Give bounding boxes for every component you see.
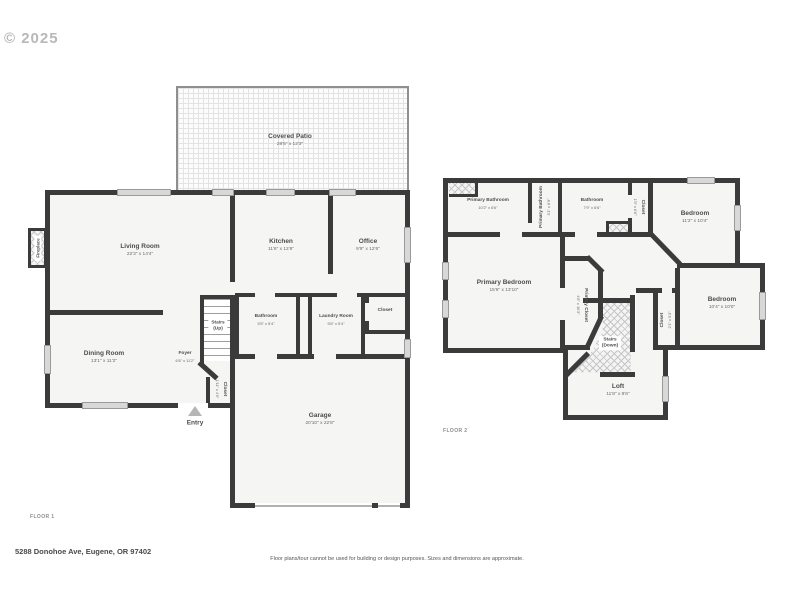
room-name: Primary Bedroom	[477, 279, 532, 287]
wall-segment	[277, 354, 314, 359]
room-dims: 10'2" x 6'6"	[467, 205, 509, 210]
room-fill	[232, 360, 408, 505]
label-closet-small: Closet 2'1" x 5'3"	[660, 311, 672, 328]
label-loft: Loft 11'8" x 8'6"	[606, 383, 629, 397]
entry-arrow-icon	[188, 406, 202, 416]
wall-segment	[528, 183, 532, 223]
wall-segment	[328, 190, 333, 274]
room-name: Bathroom	[255, 314, 278, 320]
wall-segment	[308, 297, 312, 354]
window	[443, 263, 448, 279]
label-primary-bathroom-2: Primary Bathroom 3'1" x 6'9"	[539, 184, 551, 230]
wall-segment	[600, 372, 635, 377]
wall-segment	[653, 290, 658, 350]
room-name: Covered Patio	[268, 133, 312, 141]
label-primary-closet: Primary Closet 4'8" x 10'3"	[576, 288, 588, 322]
label-laundry-room: Laundry Room 5'6" x 5'4"	[313, 314, 359, 326]
window	[760, 293, 765, 319]
room-name: Closet	[221, 380, 227, 399]
label-office: Office 9'9" x 12'6"	[356, 238, 380, 252]
wall-segment	[206, 377, 210, 404]
room-dims: 20'10" x 22'8"	[306, 421, 335, 426]
room-sub: (Up)	[211, 326, 224, 332]
wall-segment	[200, 295, 204, 365]
floor2-caption: FLOOR 2	[443, 428, 467, 434]
wall-segment	[230, 354, 255, 359]
wall-segment	[200, 295, 234, 299]
room-name: Loft	[606, 383, 629, 391]
room-name: Office	[356, 238, 380, 246]
room-dims: 5'5" x 5'4"	[255, 321, 278, 326]
room-dims: 4'8" x 10'3"	[576, 288, 581, 322]
room-name: Bedroom	[681, 210, 710, 218]
room-name: Dining Room	[84, 350, 124, 358]
wall-segment	[563, 348, 568, 420]
room-dims: 28'5" x 12'3"	[268, 142, 312, 147]
label-bathroom-f1: Bathroom 5'5" x 5'4"	[255, 314, 278, 326]
wall-segment	[365, 330, 410, 334]
address-text: 5288 Donohoe Ave, Eugene, OR 97402	[15, 547, 151, 556]
room-name: Primary Closet	[582, 288, 588, 322]
label-closet-foyer: Closet 1'11" x 4'0"	[215, 380, 227, 399]
label-stairs-down: Stairs (Down)	[599, 336, 621, 350]
wall-segment	[653, 345, 765, 350]
room-dims: 15'6" x 13'10"	[477, 288, 532, 293]
room-dims: 3'1" x 6'9"	[546, 184, 551, 230]
room-dims: 11'6" x 12'6"	[268, 247, 294, 252]
window	[213, 190, 233, 195]
room-name: Kitchen	[268, 238, 294, 246]
wall-segment	[648, 183, 653, 237]
label-stairs-up: Stairs (Up)	[208, 319, 227, 333]
room-fill	[445, 237, 565, 351]
window	[405, 340, 410, 357]
wall-segment	[598, 269, 603, 319]
wall-segment	[583, 298, 633, 303]
wall-segment	[443, 348, 565, 353]
label-bedroom-1: Bedroom 11'2" x 10'4"	[681, 210, 710, 224]
label-closet-hall-f1: Closet	[378, 308, 393, 314]
label-foyer: Foyer 6'6" x 11'2"	[176, 351, 195, 363]
wall-segment	[230, 190, 235, 282]
label-fireplace: Fireplace	[34, 235, 41, 260]
label-kitchen: Kitchen 11'6" x 12'6"	[268, 238, 294, 252]
room-name: Living Room	[120, 243, 159, 251]
label-primary-bedroom: Primary Bedroom 15'6" x 13'10"	[477, 279, 532, 293]
window	[735, 206, 740, 230]
garage-door-line	[255, 505, 372, 507]
room-dims: 22'3" x 14'4"	[120, 252, 159, 257]
room-name: Garage	[306, 412, 335, 420]
room-dims: 5'6" x 5'4"	[313, 321, 359, 326]
window	[330, 190, 355, 195]
wall-segment	[672, 288, 680, 293]
room-dims: 11'8" x 8'6"	[606, 392, 629, 397]
room-dims: 2'1" x 5'3"	[667, 311, 672, 328]
room-name: Laundry Room	[313, 314, 359, 320]
label-living-room: Living Room 22'3" x 14'4"	[120, 243, 159, 257]
garage-door-line	[378, 505, 400, 507]
wall-segment	[628, 218, 632, 232]
entry-label: Entry	[187, 420, 204, 427]
room-name: Primary Bathroom	[467, 198, 509, 204]
room-name: Stairs	[211, 320, 224, 326]
room-name: Fireplace	[35, 238, 40, 257]
disclaimer-text: Floor plans/tour cannot be used for buil…	[270, 556, 523, 562]
room-sub: (Down)	[602, 343, 618, 349]
window	[443, 301, 448, 317]
wall-segment	[45, 310, 163, 315]
room-dims: 11'2" x 10'4"	[681, 219, 710, 224]
wall-segment	[636, 288, 662, 293]
wall-segment	[443, 232, 500, 237]
wall-segment	[560, 237, 565, 288]
wall-segment	[235, 297, 239, 354]
window	[663, 377, 668, 401]
room-dims: 7'9" x 6'6"	[581, 205, 604, 210]
wall-segment	[630, 295, 635, 352]
room-name: Closet	[660, 311, 666, 328]
label-covered-patio: Covered Patio 28'5" x 12'3"	[268, 133, 312, 147]
floor1-caption: FLOOR 1	[30, 514, 54, 520]
window	[405, 228, 410, 262]
room-name: Bedroom	[708, 296, 737, 304]
window	[688, 178, 714, 183]
label-dining-room: Dining Room 13'1" x 11'2"	[84, 350, 124, 364]
wall-segment	[558, 183, 562, 232]
label-bathroom-f2: Bathroom 7'9" x 6'6"	[581, 198, 604, 210]
shower-primary-bathroom	[449, 183, 478, 197]
room-dims: 10'4" x 10'0"	[708, 305, 737, 310]
room-name: Closet	[639, 198, 645, 215]
wall-segment	[522, 232, 575, 237]
room-dims: 9'9" x 12'6"	[356, 247, 380, 252]
wall-segment	[275, 293, 337, 297]
wall-segment	[597, 232, 650, 237]
wall-segment	[296, 297, 300, 354]
window	[267, 190, 294, 195]
wall-segment	[45, 190, 50, 408]
window	[45, 346, 50, 373]
room-name: Stairs	[602, 337, 618, 343]
wall-segment	[675, 268, 680, 350]
room-dims: 1'11" x 4'0"	[215, 380, 220, 399]
copyright-watermark: © 2025	[4, 30, 59, 47]
room-dims: 1'9" x 6'6"	[633, 198, 638, 215]
wall-segment	[677, 263, 765, 268]
window	[118, 190, 170, 195]
room-name: Foyer	[176, 351, 195, 357]
window	[83, 403, 127, 408]
floor-plan-canvas: © 2025 Covered Patio 28'5" x 12'3" Livin…	[0, 0, 800, 600]
wall-segment	[365, 293, 369, 303]
room-name: Primary Bathroom	[539, 184, 545, 230]
room-dims: 6'6" x 11'2"	[176, 358, 195, 363]
wall-segment	[628, 183, 632, 195]
label-primary-bathroom: Primary Bathroom 10'2" x 6'6"	[467, 198, 509, 210]
room-name: Bathroom	[581, 198, 604, 204]
room-name: Closet	[378, 308, 393, 314]
label-bedroom-2: Bedroom 10'4" x 10'0"	[708, 296, 737, 310]
wall-segment	[563, 415, 668, 420]
label-garage: Garage 20'10" x 22'8"	[306, 412, 335, 426]
wall-segment	[336, 354, 410, 359]
room-dims: 13'1" x 11'2"	[84, 359, 124, 364]
label-closet-hall-f2: Closet 1'9" x 6'6"	[633, 198, 645, 215]
